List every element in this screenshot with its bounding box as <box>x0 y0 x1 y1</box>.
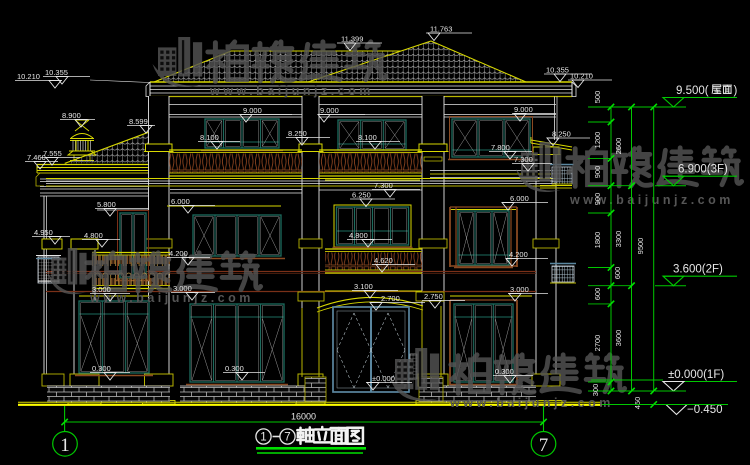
svg-text:7: 7 <box>284 432 290 444</box>
svg-text:7.555: 7.555 <box>43 149 62 158</box>
svg-text:1800: 1800 <box>593 232 602 249</box>
svg-text:4.950: 4.950 <box>34 228 53 237</box>
svg-text:1: 1 <box>260 432 266 444</box>
svg-text:1200: 1200 <box>593 132 602 149</box>
svg-text:2.700: 2.700 <box>381 294 400 303</box>
svg-text:8.599: 8.599 <box>129 117 148 126</box>
svg-text:900: 900 <box>593 166 602 179</box>
svg-text:900: 900 <box>593 193 602 206</box>
svg-text:8.100: 8.100 <box>200 133 219 142</box>
svg-text:±0.000: ±0.000 <box>372 374 395 383</box>
svg-text:0.300: 0.300 <box>92 364 111 373</box>
svg-text:10.210: 10.210 <box>570 72 593 81</box>
svg-text:6.000: 6.000 <box>171 197 190 206</box>
svg-text:±0.000(1F): ±0.000(1F) <box>668 369 724 381</box>
svg-text:3.000: 3.000 <box>92 285 111 294</box>
svg-text:www.baijunjz.com: www.baijunjz.com <box>209 84 374 98</box>
svg-text:5.800: 5.800 <box>97 200 116 209</box>
svg-text:0.300: 0.300 <box>495 367 514 376</box>
svg-text:450: 450 <box>633 397 642 410</box>
svg-text:2600: 2600 <box>614 138 623 155</box>
svg-text:7.800: 7.800 <box>491 143 510 152</box>
svg-text:9.500(: 9.500( <box>676 85 709 97</box>
svg-text:−0.450: −0.450 <box>687 404 723 416</box>
svg-text:6.900(3F): 6.900(3F) <box>678 164 728 176</box>
svg-text:3.000: 3.000 <box>173 284 192 293</box>
svg-text:500: 500 <box>593 91 602 104</box>
svg-text:11.763: 11.763 <box>430 25 452 34</box>
svg-text:10.355: 10.355 <box>45 68 68 77</box>
svg-text:10.210: 10.210 <box>17 72 40 81</box>
svg-text:7: 7 <box>539 435 549 456</box>
svg-text:7.300: 7.300 <box>514 155 533 164</box>
svg-text:3.000: 3.000 <box>510 285 529 294</box>
svg-text:6.250: 6.250 <box>352 191 371 200</box>
svg-text:16000: 16000 <box>291 412 316 422</box>
svg-text:8.100: 8.100 <box>358 133 377 142</box>
svg-text:4.800: 4.800 <box>349 231 368 240</box>
svg-text:600: 600 <box>613 267 622 280</box>
svg-text:8.250: 8.250 <box>288 129 307 138</box>
svg-text:3.600(2F): 3.600(2F) <box>673 264 723 276</box>
svg-text:9500: 9500 <box>636 238 645 255</box>
svg-text:8.900: 8.900 <box>62 111 81 120</box>
svg-text:9.000: 9.000 <box>243 106 262 115</box>
svg-text:2700: 2700 <box>593 335 602 352</box>
svg-text:7.300: 7.300 <box>374 181 393 190</box>
svg-text:): ) <box>734 85 738 97</box>
svg-text:2.750: 2.750 <box>424 292 443 301</box>
svg-text:4.200: 4.200 <box>169 249 188 258</box>
svg-text:1: 1 <box>60 435 70 456</box>
svg-text:9.000: 9.000 <box>320 106 339 115</box>
svg-text:6.000: 6.000 <box>510 194 529 203</box>
svg-text:4.800: 4.800 <box>84 231 103 240</box>
svg-text:www.baijunjz.com: www.baijunjz.com <box>449 396 614 410</box>
svg-text:9.000: 9.000 <box>514 105 533 114</box>
svg-text:300: 300 <box>591 384 600 397</box>
svg-text:3600: 3600 <box>614 330 623 347</box>
svg-text:11.399: 11.399 <box>341 35 363 44</box>
svg-text:8.250: 8.250 <box>552 130 571 139</box>
svg-text:600: 600 <box>593 288 602 301</box>
svg-text:3.100: 3.100 <box>354 282 373 291</box>
svg-text:4.200: 4.200 <box>509 250 528 259</box>
svg-text:7.460: 7.460 <box>27 153 46 162</box>
svg-text:4.620: 4.620 <box>374 256 393 265</box>
svg-text:10.355: 10.355 <box>546 66 569 75</box>
svg-text:3300: 3300 <box>614 231 623 248</box>
svg-text:0.300: 0.300 <box>225 364 244 373</box>
